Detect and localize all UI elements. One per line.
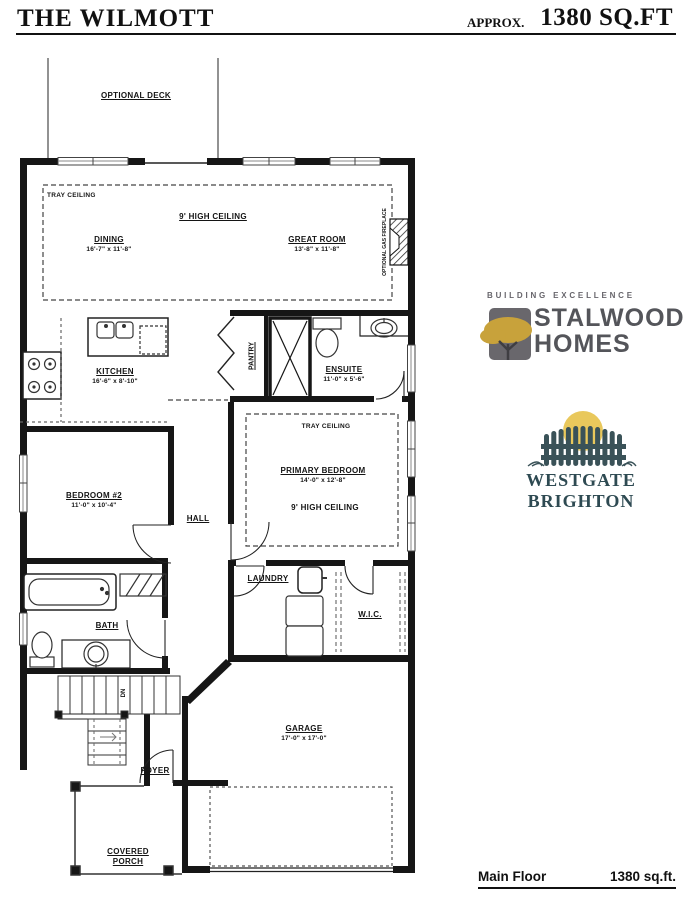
room-name: GARAGE xyxy=(281,724,327,734)
room-label-ensuite: ENSUITE 11'-0" x 5'-6" xyxy=(323,365,364,385)
pantry-bifold-icon xyxy=(218,317,234,390)
room-name: PRIMARY BEDROOM xyxy=(281,466,366,476)
room-label-foyer: FOYER xyxy=(140,766,169,776)
room-label-tray-ceiling-primary: TRAY CEILING xyxy=(302,422,351,432)
room-dims: 11'-0" x 10'-4" xyxy=(66,501,122,511)
room-dims: 16'-6" x 8'-10" xyxy=(92,377,138,387)
fireplace-label: OPTIONAL GAS FIREPLACE xyxy=(382,208,388,276)
linen-closet-icon xyxy=(120,574,166,596)
stairs-dn-label: DN xyxy=(121,688,127,699)
exterior-walls xyxy=(20,158,415,873)
laundry-sink-icon xyxy=(298,567,327,593)
room-label-laundry: LAUNDRY xyxy=(248,574,289,584)
room-dims: 13'-8" x 11'-8" xyxy=(288,245,346,255)
shower-icon xyxy=(270,318,310,398)
room-label-bedroom2: BEDROOM #2 11'-0" x 10'-4" xyxy=(66,491,122,511)
room-name-line1: COVERED xyxy=(107,847,149,857)
stove-icon xyxy=(23,352,61,399)
vanity-sink-icon xyxy=(62,640,130,668)
garage-slab-outline xyxy=(210,787,392,866)
room-dims: 14'-0" x 12'-8" xyxy=(281,476,366,486)
room-name: BEDROOM #2 xyxy=(66,491,122,501)
main-floor-sqft: 1380 sq.ft. xyxy=(610,869,676,884)
bathtub-icon xyxy=(24,574,116,610)
room-name-line2: PORCH xyxy=(107,857,149,867)
garage-door-icon xyxy=(210,866,393,874)
toilet-icon xyxy=(30,632,54,667)
room-label-hall: HALL xyxy=(187,514,210,524)
room-name: DINING xyxy=(86,235,131,245)
washer-dryer-icon xyxy=(286,596,323,656)
floor-plan-drawing xyxy=(0,0,693,902)
stalwood-name-line1: STALWOOD xyxy=(534,304,685,333)
toilet-icon xyxy=(313,318,341,357)
ensuite-fixtures xyxy=(313,316,408,357)
room-name: GREAT ROOM xyxy=(288,235,346,245)
room-label-optional-deck: OPTIONAL DECK xyxy=(101,91,171,101)
window-icons xyxy=(20,157,416,874)
fireplace-icon xyxy=(390,219,408,265)
laundry-fixtures xyxy=(286,567,327,656)
deck-outline xyxy=(48,58,218,158)
room-label-tray-ceiling-great: TRAY CEILING xyxy=(47,191,96,201)
room-dims: 16'-7" x 11'-8" xyxy=(86,245,131,255)
room-label-wic: W.I.C. xyxy=(358,610,382,620)
room-dims: 11'-0" x 5'-6" xyxy=(323,375,364,385)
room-label-pantry: PANTRY xyxy=(249,342,256,370)
westgate-brighton-name: WESTGATE BRIGHTON xyxy=(477,470,685,512)
room-label-dining: DINING 16'-7" x 11'-8" xyxy=(86,235,131,255)
room-label-kitchen: KITCHEN 16'-6" x 8'-10" xyxy=(92,367,138,387)
kitchen-island-icon xyxy=(88,318,168,356)
stalwood-logo-icon xyxy=(480,308,532,360)
room-label-high-ceiling-primary: 9' HIGH CEILING xyxy=(291,503,359,513)
room-label-covered-porch: COVERED PORCH xyxy=(107,847,149,867)
room-name: ENSUITE xyxy=(323,365,364,375)
main-floor-label: Main Floor xyxy=(478,869,546,884)
room-name: KITCHEN xyxy=(92,367,138,377)
room-label-garage: GARAGE 17'-0" x 17'-0" xyxy=(281,724,327,744)
room-label-primary-bedroom: PRIMARY BEDROOM 14'-0" x 12'-8" xyxy=(281,466,366,486)
bathroom-sink-icon xyxy=(360,316,408,337)
stalwood-name-line2: HOMES xyxy=(534,330,631,359)
room-label-great-room: GREAT ROOM 13'-8" x 11'-8" xyxy=(288,235,346,255)
floor-plan-page: THE WILMOTT APPROX. 1380 SQ.FT xyxy=(0,0,693,902)
main-floor-summary: Main Floor 1380 sq.ft. xyxy=(478,869,676,889)
room-label-high-ceiling-great: 9' HIGH CEILING xyxy=(179,212,247,222)
room-dims: 17'-0" x 17'-0" xyxy=(281,734,327,744)
stalwood-tagline: BUILDING EXCELLENCE xyxy=(487,291,635,300)
room-label-bath: BATH xyxy=(96,621,119,631)
westgate-logo-icon xyxy=(528,411,636,466)
